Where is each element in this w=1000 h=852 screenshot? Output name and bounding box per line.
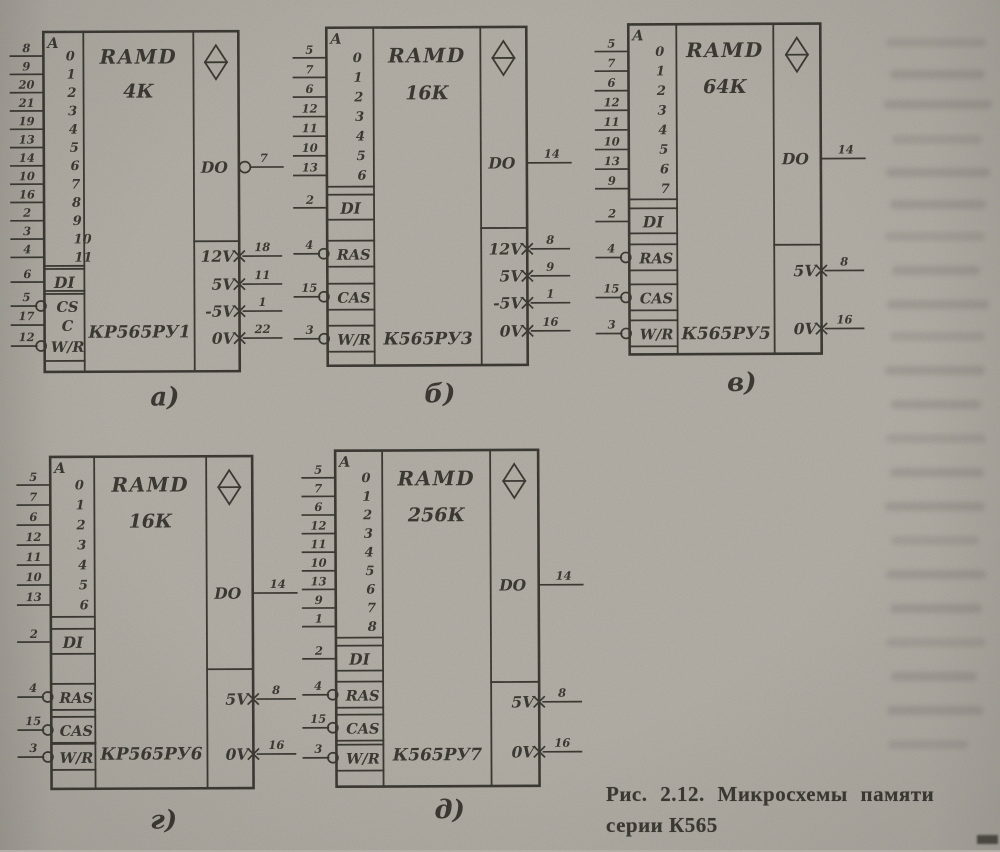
w-r-label: W/R	[640, 326, 674, 343]
pin-number: 6	[607, 76, 615, 90]
chip-title: RAMD	[99, 44, 178, 68]
right-column-divider	[490, 450, 491, 786]
address-digit: 3	[658, 104, 667, 119]
pin-number: 4	[607, 241, 615, 255]
chip-capacity: 16К	[129, 510, 174, 532]
power-label: 0V	[512, 742, 537, 761]
pin-number: 5	[305, 43, 313, 57]
pin-number: 3	[608, 317, 616, 331]
pin-number: 4	[314, 679, 322, 693]
address-digit: 0	[655, 45, 664, 60]
address-digit: 4	[78, 558, 87, 573]
pin-number: 2	[29, 627, 38, 641]
cas-label: CAS	[337, 290, 370, 307]
address-digit: 3	[77, 538, 86, 553]
address-digit: 11	[74, 251, 92, 266]
pin-number: 13	[19, 133, 35, 147]
address-digit: 5	[79, 578, 88, 593]
address-digit: 4	[356, 129, 365, 144]
pin-number: 12	[310, 519, 326, 533]
pin-number: 16	[19, 187, 35, 201]
power-label: 5V	[499, 266, 524, 285]
pin-number: 10	[19, 169, 35, 183]
power-label: 5V	[793, 261, 818, 280]
pin-number: 20	[17, 78, 34, 92]
chip-capacity: 16К	[405, 82, 450, 104]
pin-number: 14	[556, 569, 572, 583]
w-r-label: W/R	[51, 339, 85, 356]
pin-number: 2	[314, 644, 323, 658]
pin-number: 1	[258, 295, 266, 309]
pin-number: 7	[29, 490, 37, 504]
pin-number: 10	[311, 556, 327, 570]
c-label: C	[62, 318, 74, 335]
part-number: КР565РУ1	[87, 322, 190, 342]
pin-number: 1	[315, 612, 323, 626]
pin-number: 11	[310, 537, 326, 551]
pin-number: 6	[305, 82, 313, 96]
pin-number: 3	[23, 224, 31, 238]
cas-label: CAS	[640, 290, 673, 307]
address-digit: 2	[75, 518, 85, 533]
chip-title: RAMD	[110, 472, 189, 496]
memory-chips-schematic: A081922032141951361471081692103114DI6CS5…	[0, 0, 1000, 852]
pin-number: 8	[558, 686, 566, 700]
di-label: DI	[339, 199, 362, 218]
pin-number: 5	[314, 463, 322, 477]
address-digit: 1	[67, 68, 76, 83]
power-label: 0V	[212, 329, 237, 348]
pin-number: 11	[26, 550, 42, 564]
address-digit: 9	[73, 214, 82, 229]
w-r-label: W/R	[337, 332, 371, 349]
address-digit: 0	[66, 49, 75, 64]
address-digit: 6	[357, 169, 366, 184]
pin-number: 5	[22, 290, 30, 304]
pin-number: 14	[270, 577, 286, 591]
ras-label: RAS	[345, 688, 380, 705]
address-digit: 6	[366, 583, 375, 598]
pin-number: 3	[29, 741, 37, 755]
w-r-label: W/R	[346, 751, 380, 768]
pin-number: 2	[305, 193, 314, 207]
power-label: -5V	[493, 293, 524, 312]
di-label: DI	[348, 650, 371, 669]
pin-number: 4	[305, 238, 313, 252]
chip-g: A051726312411510613DI2RAS4CAS15W/R3DO145…	[17, 456, 298, 836]
address-digit: 3	[68, 104, 77, 119]
pin-number: 15	[310, 712, 326, 726]
address-digit: 0	[362, 471, 371, 486]
pin-number: 6	[314, 500, 322, 514]
address-digit: 1	[362, 490, 371, 505]
address-digit: 3	[355, 110, 364, 125]
di-label: DI	[642, 212, 665, 231]
power-label: 0V	[500, 321, 525, 340]
do-label: DO	[200, 158, 229, 177]
chip-title: RAMD	[396, 466, 475, 490]
pin-number: 16	[837, 312, 853, 326]
power-label: 0V	[226, 745, 251, 764]
address-digit: 4	[658, 123, 667, 138]
address-digit: 0	[353, 51, 362, 66]
chip-title: RAMD	[387, 43, 466, 67]
pin-number: 9	[608, 174, 616, 188]
pin-number: 9	[546, 260, 554, 274]
pin-number: 4	[29, 681, 37, 695]
address-header: A	[328, 31, 341, 48]
cas-label: CAS	[346, 721, 379, 738]
chip-b: A051726312411510613DI2RAS4CAS15W/R3DO141…	[293, 27, 572, 410]
pin-number: 3	[306, 323, 314, 337]
chip-d: A0517263124115106137981DI2RAS4CAS15W/R3D…	[302, 450, 584, 826]
left-column-divider	[373, 28, 374, 366]
pin-number: 8	[546, 233, 554, 247]
address-digit: 7	[367, 601, 376, 616]
do-label: DO	[498, 575, 527, 594]
pin-number: 12	[19, 330, 35, 344]
pin-number: 15	[25, 714, 41, 728]
address-header: A	[337, 454, 350, 471]
address-digit: 10	[74, 232, 92, 247]
address-digit: 1	[656, 64, 665, 79]
pin-number: 7	[607, 56, 615, 70]
inversion-circle-icon	[239, 162, 250, 173]
address-header: A	[45, 35, 58, 52]
caption-line-1: Рис. 2.12. Микросхемы памяти	[606, 779, 998, 810]
pin-number: 5	[29, 470, 37, 484]
pin-number: 12	[302, 102, 318, 116]
pin-number: 22	[254, 322, 271, 336]
pin-number: 4	[23, 242, 31, 256]
pin-number: 7	[305, 62, 313, 76]
pin-number: 6	[23, 267, 31, 281]
address-digit: 5	[365, 564, 374, 579]
scanned-book-page: { "colors": { "ink": "#35322b", "paper":…	[0, 0, 1000, 850]
part-number: К565РУ3	[382, 329, 473, 349]
ras-label: RAS	[58, 690, 93, 707]
address-header: A	[52, 460, 65, 477]
pin-number: 15	[603, 281, 619, 295]
do-label: DO	[487, 153, 516, 172]
pin-number: 10	[604, 134, 620, 148]
pin-number: 8	[22, 41, 30, 55]
pin-number: 11	[302, 121, 318, 135]
right-column-divider	[193, 31, 194, 371]
pin-number: 17	[18, 309, 34, 323]
address-digit: 7	[71, 177, 80, 192]
chip-a: A081922032141951361471081692103114DI6CS5…	[10, 31, 284, 413]
di-label: DI	[62, 633, 85, 652]
chip-capacity: 4К	[123, 81, 154, 103]
left-column-divider	[94, 457, 95, 789]
cs-label: CS	[56, 299, 78, 316]
caption-line-2: серии К565	[606, 810, 998, 841]
pin-number: 1	[546, 287, 554, 301]
address-digit: 1	[353, 71, 362, 86]
ras-label: RAS	[336, 247, 371, 264]
address-digit: 7	[661, 182, 670, 197]
pin-number: 16	[268, 738, 284, 752]
address-digit: 6	[70, 159, 79, 174]
chip-capacity: 256К	[407, 504, 466, 526]
address-digit: 2	[656, 84, 666, 99]
do-label: DO	[213, 584, 242, 603]
pin-number: 13	[302, 160, 318, 174]
pin-number: 13	[26, 590, 42, 604]
address-digit: 4	[69, 123, 78, 138]
address-digit: 2	[353, 90, 363, 105]
left-column-divider	[676, 24, 677, 354]
pin-number: 19	[19, 114, 35, 128]
pin-number: 14	[19, 151, 35, 165]
power-label: 0V	[794, 319, 819, 338]
power-label: 5V	[511, 692, 536, 711]
address-digit: 4	[365, 545, 374, 560]
pin-number: 8	[272, 683, 280, 697]
pin-number: 12	[604, 95, 620, 109]
address-digit: 1	[76, 498, 85, 513]
pin-number: 10	[26, 570, 42, 584]
power-label: -5V	[205, 302, 236, 321]
pin-number: 7	[260, 151, 268, 165]
right-column-divider	[480, 27, 481, 365]
pin-number: 10	[302, 141, 318, 155]
right-column-divider	[773, 24, 774, 354]
chip-sublabel: г)	[150, 805, 177, 835]
chip-v: A05172631241151061379DI2RAS4CAS15W/R3DO1…	[595, 23, 866, 398]
figure-caption: Рис. 2.12. Микросхемы памяти серии К565	[606, 779, 998, 841]
left-column-divider	[382, 451, 383, 787]
address-digit: 8	[72, 196, 81, 211]
address-header: A	[630, 27, 643, 44]
pin-number: 11	[254, 268, 270, 282]
part-number: К565РУ7	[392, 745, 483, 765]
pin-number: 14	[544, 147, 560, 161]
left-column-divider	[83, 32, 84, 372]
pin-number: 6	[29, 510, 37, 524]
part-number: КР565РУ6	[99, 744, 202, 764]
pin-number: 9	[22, 59, 30, 73]
address-digit: 3	[364, 527, 373, 542]
address-digit: 5	[659, 143, 668, 158]
pin-number: 12	[25, 530, 41, 544]
chip-sublabel: б)	[424, 379, 455, 409]
ras-label: RAS	[638, 250, 673, 267]
power-label: 12V	[201, 247, 237, 266]
pin-number: 15	[301, 281, 317, 295]
chip-sublabel: в)	[727, 368, 757, 398]
chip-sublabel: д)	[434, 795, 465, 825]
chip-sublabel: а)	[150, 382, 179, 412]
do-label: DO	[781, 149, 810, 168]
power-label: 5V	[212, 275, 237, 294]
pin-number: 16	[554, 736, 570, 750]
right-column-divider	[206, 456, 207, 788]
address-digit: 0	[75, 478, 84, 493]
address-digit: 2	[66, 86, 76, 101]
pin-number: 8	[840, 254, 848, 268]
w-r-label: W/R	[60, 750, 94, 767]
address-digit: 8	[368, 620, 377, 635]
pin-number: 14	[838, 142, 854, 156]
power-label: 5V	[225, 690, 250, 709]
address-digit: 5	[70, 141, 79, 156]
pin-number: 16	[543, 315, 559, 329]
pin-number: 3	[314, 742, 322, 756]
pin-number: 18	[254, 240, 270, 254]
chip-title: RAMD	[685, 38, 764, 62]
address-digit: 6	[660, 162, 669, 177]
pin-number: 13	[311, 574, 327, 588]
chip-capacity: 64К	[703, 76, 748, 98]
di-label: DI	[53, 273, 76, 292]
pin-number: 7	[314, 481, 322, 495]
pin-number: 5	[607, 36, 615, 50]
pin-number: 2	[607, 206, 616, 220]
address-digit: 2	[362, 508, 372, 523]
pin-number: 13	[604, 154, 620, 168]
pin-number: 2	[22, 206, 31, 220]
pin-number: 21	[18, 96, 35, 110]
power-label: 12V	[489, 239, 525, 258]
pin-number: 9	[315, 593, 323, 607]
address-digit: 6	[80, 598, 89, 613]
pin-number: 11	[604, 115, 620, 129]
part-number: К565РУ5	[680, 324, 770, 344]
cas-label: CAS	[60, 723, 93, 740]
address-digit: 5	[357, 149, 366, 164]
